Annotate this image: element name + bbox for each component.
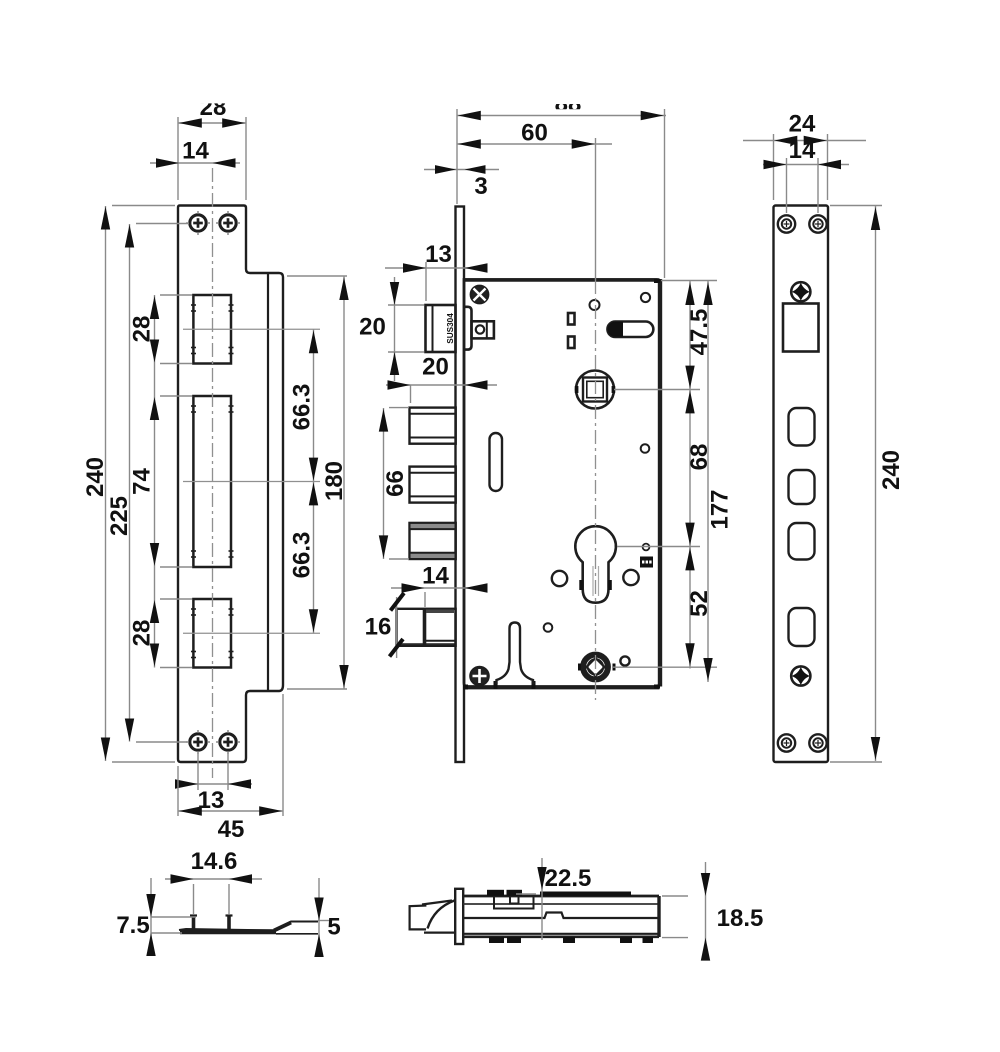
svg-text:74: 74 [129, 468, 156, 495]
svg-text:240: 240 [878, 450, 905, 490]
svg-text:28: 28 [129, 316, 156, 343]
svg-text:14: 14 [422, 563, 449, 590]
svg-text:180: 180 [321, 461, 348, 501]
svg-text:28: 28 [129, 620, 156, 647]
svg-text:16: 16 [365, 614, 392, 641]
svg-text:225: 225 [106, 496, 133, 536]
svg-text:60: 60 [521, 120, 548, 147]
svg-text:45: 45 [218, 816, 245, 843]
svg-text:14: 14 [182, 138, 209, 165]
svg-text:20: 20 [359, 314, 386, 341]
svg-text:3: 3 [474, 173, 487, 200]
svg-text:22.5: 22.5 [545, 865, 592, 892]
svg-text:240: 240 [82, 457, 109, 497]
svg-text:47.5: 47.5 [686, 309, 713, 356]
svg-text:13: 13 [425, 241, 452, 268]
svg-text:24: 24 [789, 111, 816, 138]
svg-text:66.3: 66.3 [289, 532, 316, 579]
svg-text:14.6: 14.6 [191, 848, 238, 875]
svg-text:7.5: 7.5 [116, 912, 149, 939]
svg-text:66: 66 [382, 470, 409, 497]
svg-text:SUS304: SUS304 [446, 313, 455, 344]
svg-text:66.3: 66.3 [289, 384, 316, 431]
svg-text:52: 52 [686, 590, 713, 617]
svg-text:20: 20 [422, 354, 449, 381]
svg-text:14: 14 [789, 137, 816, 164]
svg-text:18.5: 18.5 [717, 905, 764, 932]
svg-text:177: 177 [707, 489, 734, 529]
svg-text:68: 68 [686, 444, 713, 471]
svg-text:5: 5 [327, 914, 340, 941]
